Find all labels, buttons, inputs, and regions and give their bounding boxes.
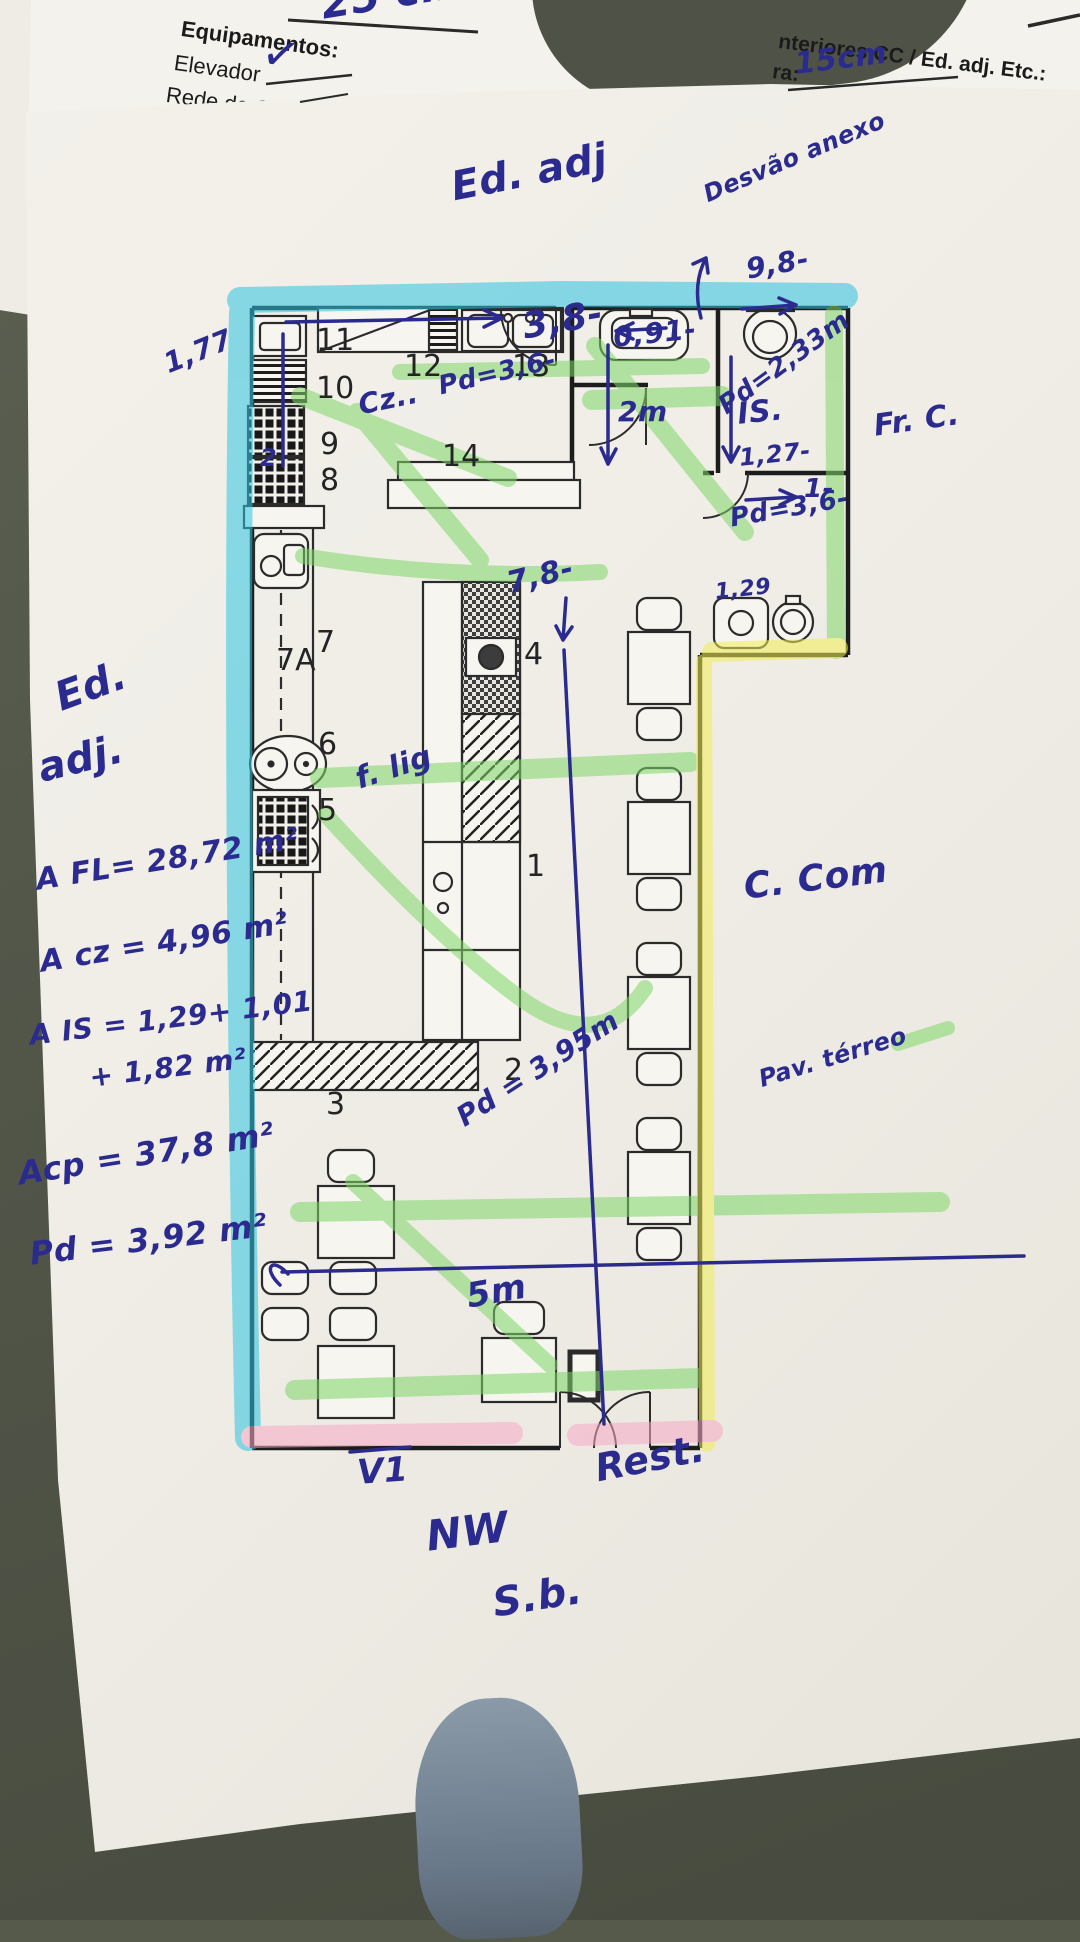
handwritten-annotation: Pd = 3,95m — [452, 1006, 624, 1131]
handwritten-annotation: 1,27- — [738, 439, 812, 470]
handwritten-annotation: 9,8- — [744, 245, 811, 284]
handwritten-annotation: 2 — [260, 446, 277, 470]
handwritten-annotation: ✓ — [258, 28, 304, 80]
handwritten-annotation: f. lig — [352, 742, 436, 795]
handwritten-annotation: V1 — [356, 1452, 409, 1489]
handwritten-annotation: 25 cm — [318, 0, 467, 25]
handwritten-annotation: adj. — [34, 729, 128, 789]
handwritten-annotation: + 1,82 m² — [88, 1045, 248, 1092]
handwritten-annotation: Fr. C. — [872, 400, 961, 442]
handwritten-annotation: Pd=2,33m — [714, 307, 854, 419]
handwritten-annotation: 1,77 — [160, 325, 236, 378]
handwritten-annotation: 7,8- — [504, 554, 577, 599]
handwritten-annotation: Pd=3,6- — [436, 347, 559, 399]
handwritten-annotation: Ed. — [50, 655, 132, 717]
handwritten-annotation: A cz = 4,96 m² — [38, 909, 290, 978]
handwritten-annotation: 5m — [464, 1270, 529, 1314]
handwritten-annotation: 2m — [618, 398, 668, 426]
handwritten-annotation: NW — [424, 1506, 511, 1558]
handwritten-annotation: Pd = 3,92 m² — [28, 1209, 269, 1270]
handwritten-annotation: Acp = 37,8 m² — [16, 1118, 277, 1190]
handwritten-annotation: Cz.. — [356, 379, 421, 419]
handwritten-annotation: Desvão anexo — [700, 108, 889, 206]
handwritten-annotation: 15cm — [793, 39, 889, 80]
handwritten-annotation: C. Com — [742, 852, 890, 905]
handwritten-annotation: A FL= 28,72 m² — [34, 824, 301, 895]
handwritten-annotation: S.b. — [490, 1570, 585, 1624]
handwritten-annotation: Pav. térreo — [756, 1023, 909, 1091]
handwritten-annotation: 0,91- — [612, 315, 698, 352]
handwritten-annotation: 1,29 — [714, 576, 772, 604]
handwritten-annotations: 25 cm15cm✓Ed. adjDesvão anexo9,8-1,773,8… — [0, 0, 1080, 1920]
handwritten-annotation: 3,8- — [520, 296, 606, 345]
handwritten-annotation: A IS = 1,29+ 1,01 — [28, 987, 314, 1050]
handwritten-annotation: Rest. — [592, 1429, 708, 1487]
handwritten-annotation: IS. — [736, 395, 785, 430]
handwritten-annotation: Pd=3,6- — [728, 485, 851, 531]
handwritten-annotation: Ed. adj — [448, 138, 611, 207]
